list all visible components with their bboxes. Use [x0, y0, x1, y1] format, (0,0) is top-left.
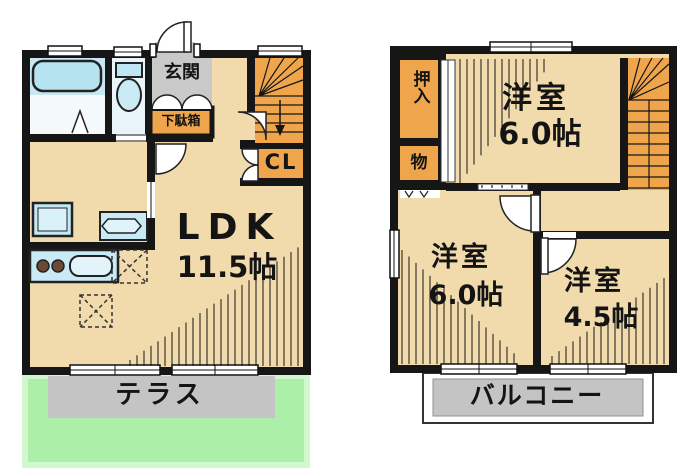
- bathroom-floor-lower: [30, 95, 105, 134]
- kitchen-counter-icon: [30, 250, 118, 282]
- bathtub-icon: [33, 61, 101, 91]
- ldk-size-label: 11.5帖: [177, 253, 278, 282]
- washroom-sliding-door: [147, 182, 155, 218]
- stove-burner-icon: [52, 260, 64, 272]
- toilet-door: [116, 134, 146, 142]
- room-left-label: 洋室: [431, 244, 491, 271]
- room-right-size-label: 4.5帖: [564, 304, 639, 331]
- room-top-size-label: 6.0帖: [498, 120, 581, 150]
- storage-label: 物: [411, 155, 428, 172]
- washbasin-icon: [100, 212, 147, 240]
- floor-plan: 玄関 下駄箱 CL LDK 11.5帖 テラス 押入 物 洋室 6.0帖 洋室 …: [0, 0, 700, 472]
- kitchen-sink-icon: [70, 256, 112, 276]
- balcony-label: バルコニー: [470, 383, 605, 408]
- shoe-cabinet-label: 下駄箱: [161, 115, 200, 128]
- staircase-floor2: [628, 58, 669, 190]
- closet-cl-label: CL: [265, 152, 298, 173]
- washing-machine-icon: [33, 203, 72, 236]
- staircase-floor1: [255, 58, 303, 143]
- terrace-label: テラス: [115, 382, 204, 408]
- toilet-icon: [116, 63, 142, 111]
- ldk-label: LDK: [177, 210, 282, 246]
- entrance-label: 玄関: [164, 64, 200, 82]
- room-right-label: 洋室: [564, 268, 624, 295]
- stove-burner-icon: [37, 260, 49, 272]
- room-left-size-label: 6.0帖: [429, 282, 504, 309]
- room-top-label: 洋室: [502, 84, 570, 114]
- oshiire-label: 押入: [411, 70, 428, 104]
